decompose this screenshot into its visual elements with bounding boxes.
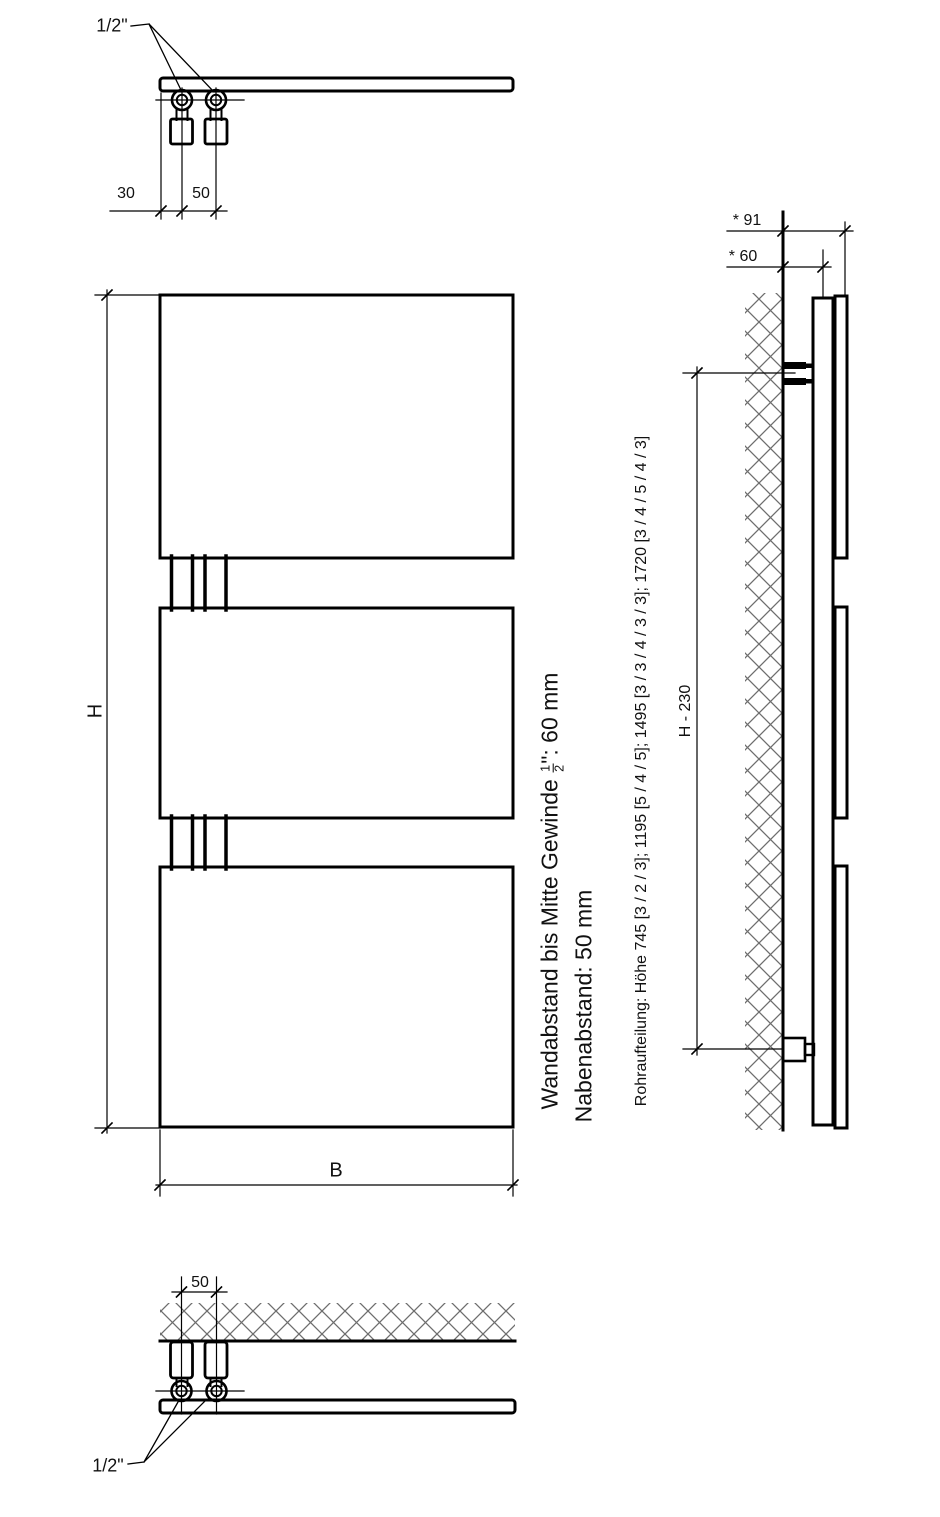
dim-label-30: 30 bbox=[117, 185, 135, 203]
connecting-pipes-upper bbox=[172, 556, 227, 610]
bottom-connection-detail bbox=[128, 1277, 515, 1464]
front-view bbox=[95, 290, 518, 1196]
wall-hatch bbox=[745, 293, 783, 1130]
radiator-panel-2 bbox=[160, 608, 513, 818]
front-panel-segment-3 bbox=[835, 866, 847, 1128]
fraction-one-half: 12 bbox=[540, 764, 568, 773]
connecting-pipes-lower bbox=[172, 816, 227, 869]
note-pipe-layout: Rohraufteilung: Höhe 745 [3 / 2 / 3]; 11… bbox=[633, 436, 651, 1106]
panel-top-view bbox=[160, 78, 513, 91]
note-wall-distance-prefix: Wandabstand bis Mitte Gewinde bbox=[537, 773, 563, 1110]
note-hub-distance: Nabenabstand: 50 mm bbox=[571, 890, 598, 1123]
rear-panel-profile bbox=[813, 298, 833, 1125]
thread-size-label-top: 1/2" bbox=[96, 16, 127, 37]
top-connection-detail bbox=[110, 24, 513, 219]
panel-bottom-view bbox=[160, 1400, 515, 1413]
leader-line bbox=[131, 24, 214, 92]
side-view bbox=[683, 212, 853, 1130]
front-panel-segment-2 bbox=[835, 607, 847, 818]
radiator-panel-1 bbox=[160, 295, 513, 558]
technical-drawing-canvas: 1/2" 30 50 H B * 91 * 60 H - 230 Wandabs… bbox=[0, 0, 940, 1517]
dim-label-91: * 91 bbox=[733, 212, 761, 230]
leader-line bbox=[128, 1400, 206, 1464]
dim-label-50-top: 50 bbox=[192, 185, 210, 203]
radiator-panel-3 bbox=[160, 867, 513, 1127]
note-wall-distance: Wandabstand bis Mitte Gewinde 12": 60 mm bbox=[537, 673, 568, 1110]
wall-connection-bottom bbox=[783, 1038, 805, 1061]
thread-size-label-bottom: 1/2" bbox=[92, 1456, 123, 1477]
front-panel-segment-1 bbox=[835, 296, 847, 558]
dim-label-h-minus-230: H - 230 bbox=[677, 685, 695, 737]
drawing-linework bbox=[0, 0, 940, 1517]
dim-label-50-bottom: 50 bbox=[191, 1274, 209, 1292]
dim-label-60: * 60 bbox=[729, 248, 757, 266]
height-dimension-label: H bbox=[85, 704, 108, 718]
width-dimension-label: B bbox=[329, 1160, 342, 1183]
wall-hatch-bottom bbox=[160, 1303, 515, 1341]
note-wall-distance-suffix: ": 60 mm bbox=[537, 673, 563, 764]
